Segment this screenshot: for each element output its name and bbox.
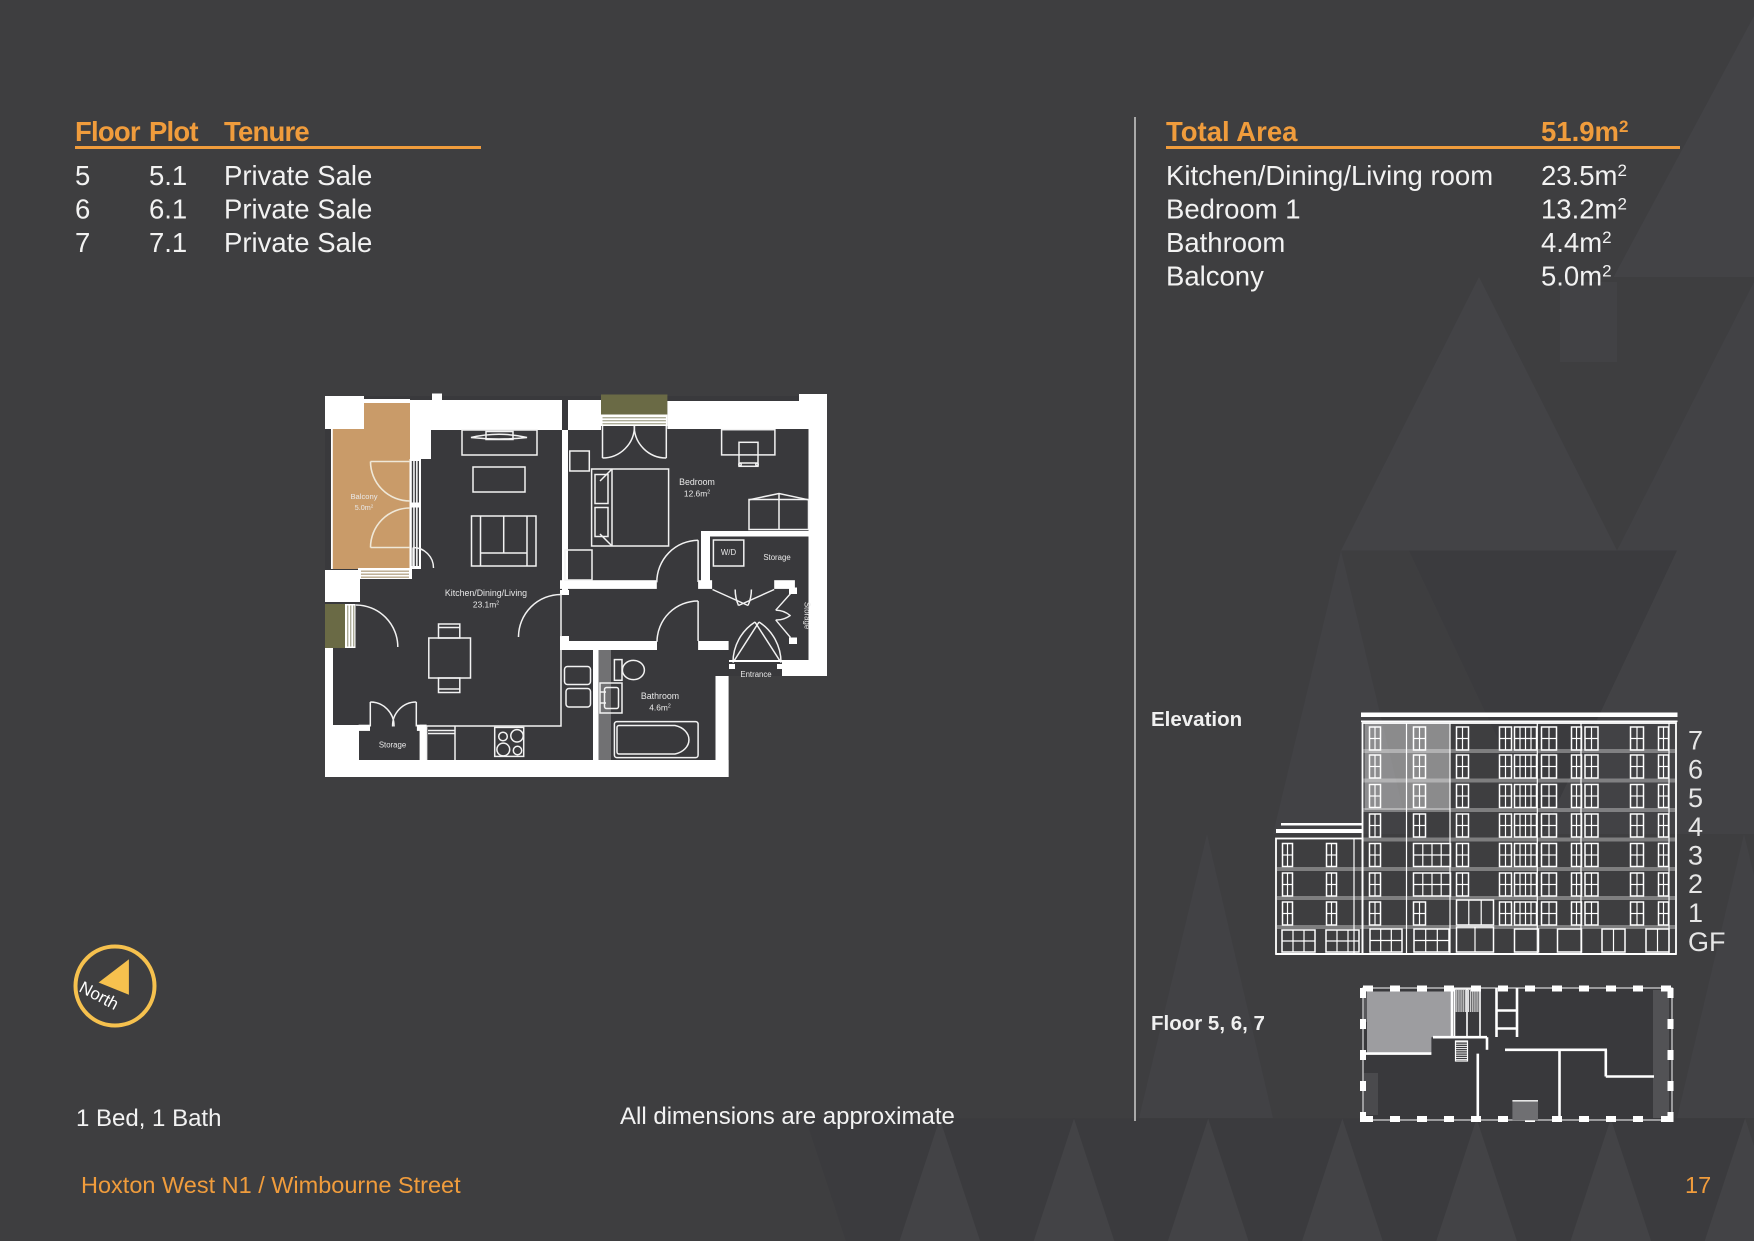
svg-text:Private Sale: Private Sale (224, 160, 372, 191)
svg-text:W/D: W/D (721, 548, 737, 557)
svg-text:Bathroom: Bathroom (641, 691, 679, 701)
svg-text:3: 3 (1688, 841, 1703, 871)
svg-text:5.0m2: 5.0m2 (1541, 261, 1612, 292)
svg-text:7: 7 (75, 227, 90, 258)
svg-text:6.1: 6.1 (149, 194, 187, 225)
svg-text:7.1: 7.1 (149, 227, 187, 258)
svg-text:Private Sale: Private Sale (224, 194, 372, 225)
svg-text:4: 4 (1688, 812, 1703, 842)
svg-text:13.2m2: 13.2m2 (1541, 194, 1627, 225)
svg-text:GF: GF (1688, 927, 1726, 957)
svg-text:Floor 5, 6, 7: Floor 5, 6, 7 (1151, 1012, 1265, 1035)
svg-text:Private Sale: Private Sale (224, 227, 372, 258)
svg-text:All dimensions are approximate: All dimensions are approximate (620, 1103, 955, 1130)
svg-text:Kitchen/Dining/Living room: Kitchen/Dining/Living room (1166, 160, 1493, 191)
svg-text:Bedroom 1: Bedroom 1 (1166, 194, 1301, 225)
svg-text:Entrance: Entrance (740, 670, 771, 679)
svg-text:5: 5 (1688, 783, 1703, 813)
svg-text:Bedroom: Bedroom (679, 477, 715, 487)
svg-text:2: 2 (1688, 869, 1703, 899)
svg-text:23.5m2: 23.5m2 (1541, 160, 1627, 191)
svg-text:6: 6 (75, 194, 90, 225)
svg-text:Plot: Plot (149, 116, 198, 147)
svg-text:4.6m2: 4.6m2 (649, 703, 671, 713)
svg-text:Floor: Floor (75, 116, 141, 147)
svg-text:Balcony: Balcony (1166, 261, 1264, 292)
svg-text:4.4m2: 4.4m2 (1541, 227, 1612, 258)
svg-text:1: 1 (1688, 898, 1703, 928)
svg-text:6: 6 (1688, 755, 1703, 785)
svg-text:Elevation: Elevation (1151, 708, 1242, 731)
svg-text:Balcony: Balcony (350, 492, 377, 501)
svg-text:Bathroom: Bathroom (1166, 227, 1285, 258)
svg-text:7: 7 (1688, 726, 1703, 756)
svg-text:Tenure: Tenure (224, 116, 309, 147)
svg-text:12.6m2: 12.6m2 (684, 489, 710, 499)
svg-text:1 Bed, 1 Bath: 1 Bed, 1 Bath (76, 1105, 221, 1132)
svg-text:5.1: 5.1 (149, 160, 187, 191)
svg-text:5: 5 (75, 160, 90, 191)
svg-text:17: 17 (1685, 1172, 1711, 1198)
svg-text:Storage: Storage (763, 553, 790, 562)
svg-text:Storage: Storage (803, 602, 812, 629)
svg-text:51.9m2: 51.9m2 (1541, 116, 1628, 147)
svg-text:Kitchen/Dining/Living: Kitchen/Dining/Living (445, 588, 527, 598)
svg-text:Hoxton West N1 / Wimbourne Str: Hoxton West N1 / Wimbourne Street (81, 1172, 461, 1198)
svg-text:23.1m2: 23.1m2 (473, 600, 499, 610)
svg-text:Storage: Storage (379, 741, 406, 750)
svg-text:Total Area: Total Area (1166, 116, 1298, 147)
